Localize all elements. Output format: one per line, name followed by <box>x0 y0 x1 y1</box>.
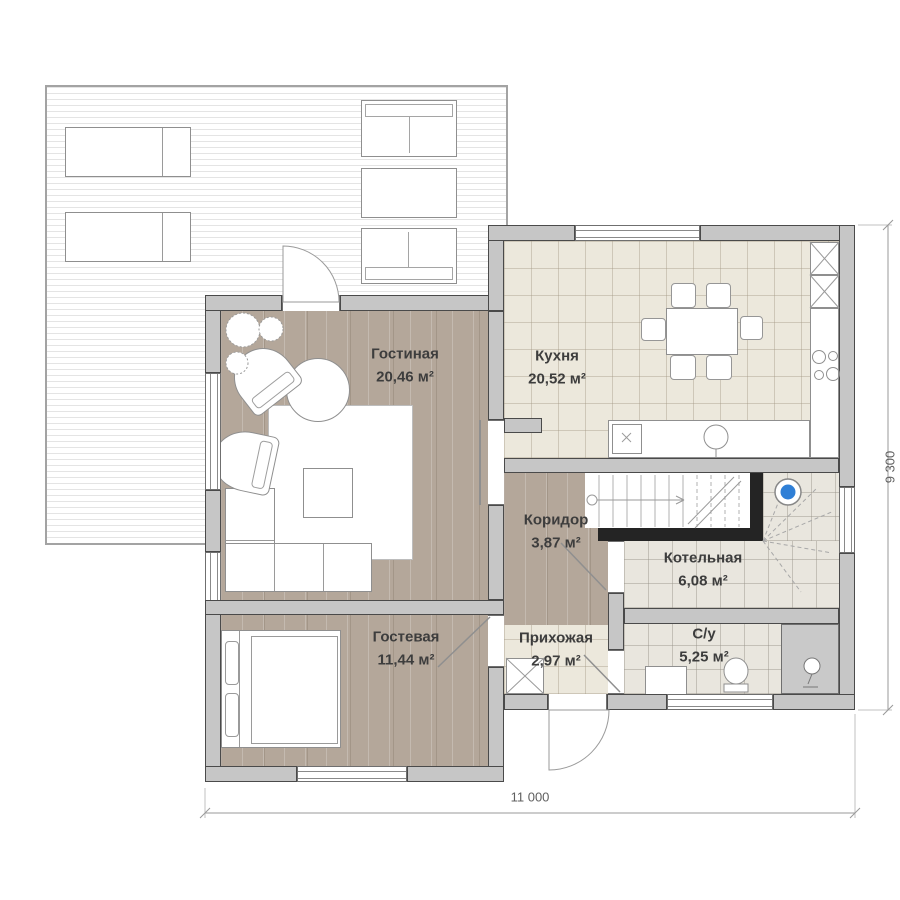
wall-mid-upper <box>488 311 504 420</box>
kitchen-window <box>575 225 700 241</box>
washing-machine <box>645 666 687 696</box>
guest-door-opening <box>488 615 504 667</box>
corner-sofa-bottom <box>225 543 372 592</box>
wall-living-guest <box>205 600 504 615</box>
room-label-bathroom: С/у 5,25 м² <box>679 624 728 669</box>
room-name: Котельная <box>664 548 743 571</box>
wall-left-lower <box>205 602 221 782</box>
wall-bottom-left-b <box>407 766 504 782</box>
wall-top-living-b <box>340 295 504 311</box>
room-area: 20,52 м² <box>528 368 586 391</box>
room-label-guest: Гостевая 11,44 м² <box>373 627 440 672</box>
wall-mid-center <box>488 505 504 600</box>
wall-boiler-bathroom <box>624 608 839 624</box>
boiler-room-floor-upper <box>763 473 839 541</box>
terrace-sofa <box>361 100 457 157</box>
room-name: С/у <box>679 624 728 647</box>
room-area: 3,87 м² <box>524 532 589 555</box>
room-name: Прихожая <box>519 628 593 651</box>
stair-window-right <box>839 487 855 553</box>
room-label-boiler: Котельная 6,08 м² <box>664 548 743 593</box>
terrace-door-opening <box>282 295 340 311</box>
wall-hall-boiler <box>608 593 624 650</box>
dining-chair <box>671 283 696 308</box>
dishwasher <box>612 424 642 454</box>
room-label-corridor: Коридор 3,87 м² <box>524 510 589 555</box>
terrace-sofa <box>361 228 457 284</box>
room-name: Гостиная <box>371 344 439 367</box>
shower-zone <box>781 624 839 694</box>
front-door-opening <box>548 694 607 710</box>
wall-stub <box>504 418 542 433</box>
stair-wall-horizontal <box>598 528 763 541</box>
wall-bottom-right-b <box>607 694 667 710</box>
bathroom-door-opening <box>608 650 624 694</box>
bed-pillow <box>225 693 239 737</box>
dining-chair <box>740 316 763 340</box>
room-area: 5,25 м² <box>679 646 728 669</box>
staircase-area <box>585 473 752 528</box>
wall-right-upper <box>839 225 855 487</box>
stair-wall-vertical <box>750 473 763 528</box>
boiler-door-opening <box>608 541 624 593</box>
terrace-table <box>361 168 457 218</box>
bathroom-window <box>667 694 773 710</box>
wall-mid-lower <box>488 667 504 782</box>
room-area: 2,97 м² <box>519 650 593 673</box>
bed-headboard <box>239 631 240 747</box>
coffee-table <box>303 468 353 518</box>
wall-bottom-right-a <box>504 694 548 710</box>
guest-bed <box>221 630 341 748</box>
round-side-table <box>286 358 350 422</box>
room-label-hall: Прихожая 2,97 м² <box>519 628 593 673</box>
bed-pillow <box>225 641 239 685</box>
bed-blanket <box>251 636 338 744</box>
wall-bottom-left-a <box>205 766 297 782</box>
dining-table <box>666 308 738 355</box>
dining-chair <box>641 318 666 341</box>
dimension-height-label: 9 300 <box>883 451 898 484</box>
dimension-width-label: 11 000 <box>511 790 550 805</box>
room-name: Коридор <box>524 510 589 533</box>
wall-left-mid <box>205 490 221 552</box>
dining-chair <box>706 355 732 380</box>
dining-chair <box>670 355 696 380</box>
living-window-left <box>205 373 221 490</box>
wall-bottom-right-c <box>773 694 855 710</box>
floor-plan-canvas: Гостиная 20,46 м² Кухня 20,52 м² Коридор… <box>0 0 900 900</box>
wall-kitchen-corridor <box>504 458 839 473</box>
room-area: 20,46 м² <box>371 366 439 389</box>
guest-window <box>297 766 407 782</box>
tall-cabinet <box>810 242 839 275</box>
room-area: 6,08 м² <box>664 570 743 593</box>
wall-top-kitchen-b <box>700 225 855 241</box>
living-corridor-opening <box>488 420 504 505</box>
wall-top-kitchen-a <box>488 225 575 241</box>
room-label-kitchen: Кухня 20,52 м² <box>528 346 586 391</box>
room-name: Кухня <box>528 346 586 369</box>
room-name: Гостевая <box>373 627 440 650</box>
wall-top-living-a <box>205 295 282 311</box>
front-door-swing <box>549 710 609 770</box>
wall-right-lower <box>839 553 855 710</box>
tall-cabinet <box>810 275 839 308</box>
kitchen-counter-right <box>810 308 839 458</box>
room-area: 11,44 м² <box>373 649 440 672</box>
sun-lounger <box>65 212 191 262</box>
room-label-living: Гостиная 20,46 м² <box>371 344 439 389</box>
sun-lounger <box>65 127 191 177</box>
living-window-left-2 <box>205 552 221 602</box>
dining-chair <box>706 283 731 308</box>
